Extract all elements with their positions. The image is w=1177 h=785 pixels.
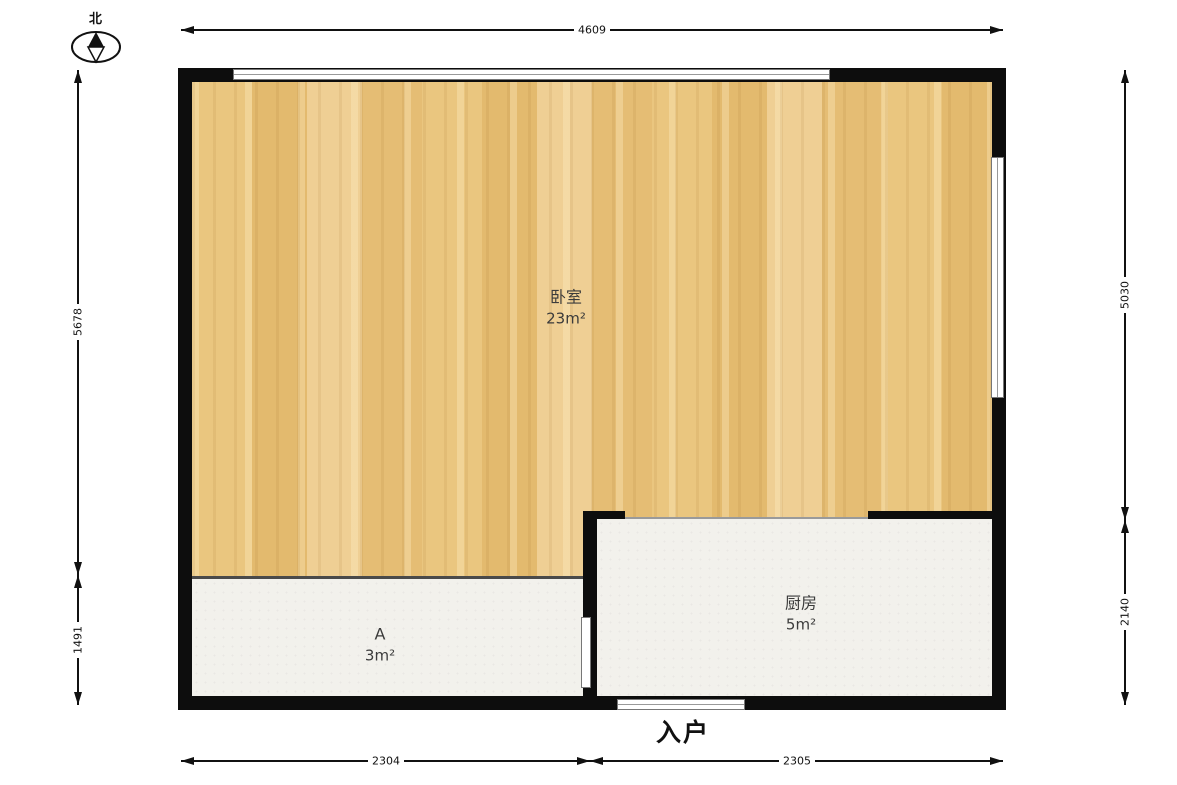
dim-right-lower-label: 2140 [1119, 594, 1132, 630]
kitchen-name: 厨房 [785, 593, 817, 615]
window-top [233, 69, 830, 80]
kitchen-area: 5m² [785, 615, 817, 636]
window-right [991, 157, 1004, 398]
bedroom-name: 卧室 [546, 287, 586, 309]
room-a-label: A 3m² [365, 624, 395, 667]
window-pane-line [997, 158, 998, 397]
dim-right-upper-label: 5030 [1119, 277, 1132, 313]
dim-left-lower-label: 1491 [72, 622, 85, 658]
entry-label: 入户 [656, 713, 710, 749]
dim-arrow-icon [74, 562, 82, 575]
dim-top-label: 4609 [574, 24, 610, 37]
dim-bottom-right-label: 2305 [779, 755, 815, 768]
dim-left-line [77, 70, 79, 705]
room-bedroom-floor [192, 82, 992, 519]
room-kitchen-label: 厨房 5m² [785, 593, 817, 636]
dim-left-upper-label: 5678 [72, 304, 85, 340]
dim-arrow-icon [181, 26, 194, 34]
dim-arrow-icon [590, 757, 603, 765]
dim-arrow-icon [1121, 692, 1129, 705]
dim-arrow-icon [1121, 70, 1129, 83]
dim-arrow-icon [74, 575, 82, 588]
room-bedroom-label: 卧室 23m² [546, 287, 586, 330]
dim-bottom-left-label: 2304 [368, 755, 404, 768]
dim-arrow-icon [990, 757, 1003, 765]
wall-kitchen-top-left [583, 511, 625, 519]
dim-arrow-icon [74, 70, 82, 83]
door-entry [617, 699, 745, 710]
dim-arrow-icon [577, 757, 590, 765]
wall-left [178, 68, 192, 710]
window-pane-line [234, 74, 829, 75]
bedroom-a-floor-transition [192, 576, 597, 579]
room-a-name: A [365, 624, 395, 646]
kitchen-opening-threshold [625, 517, 868, 519]
dim-arrow-icon [1121, 507, 1129, 520]
bedroom-area: 23m² [546, 309, 586, 330]
dim-arrow-icon [990, 26, 1003, 34]
wall-kitchen-top-right [868, 511, 992, 519]
dim-arrow-icon [181, 757, 194, 765]
floor-plan-canvas: 北 卧室 23m² 厨房 5m² A 3m² 入户 [0, 0, 1177, 785]
door-pane-line [618, 704, 744, 705]
dim-arrow-icon [74, 692, 82, 705]
room-a-area: 3m² [365, 646, 395, 667]
wall-bottom [178, 696, 1006, 710]
compass-icon [68, 27, 124, 67]
compass: 北 [68, 8, 124, 70]
door-interior-sliding [581, 617, 591, 688]
north-label: 北 [68, 8, 124, 27]
dim-arrow-icon [1121, 520, 1129, 533]
room-bedroom-floor-lower [192, 519, 583, 576]
